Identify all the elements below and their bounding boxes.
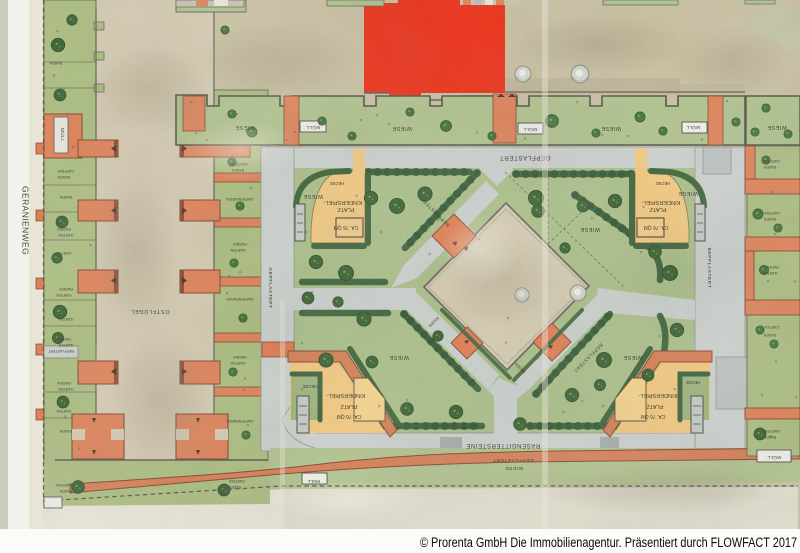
svg-text:GERANIENWEG: GERANIENWEG [21,186,31,255]
svg-text:© Prorenta GmbH Die Immobilien: © Prorenta GmbH Die Immobilienagentur. P… [420,535,797,550]
